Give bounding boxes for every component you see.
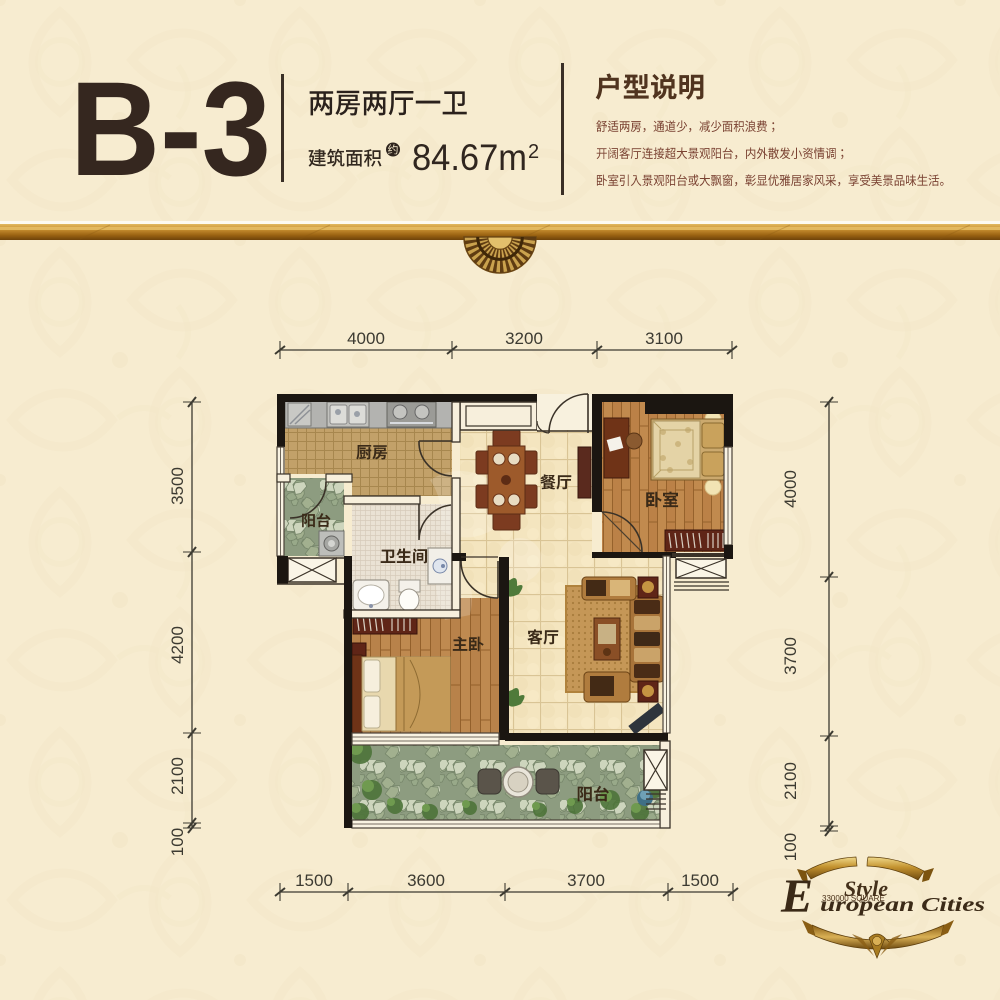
svg-text:84.67m: 84.67m [412,137,527,178]
svg-text:100: 100 [168,828,187,856]
svg-text:4200: 4200 [168,626,187,664]
svg-text:100: 100 [781,833,800,861]
svg-text:2100: 2100 [168,757,187,795]
svg-text:2100: 2100 [781,762,800,800]
svg-text:3600: 3600 [407,871,445,890]
svg-text:3100: 3100 [645,329,683,348]
svg-text:1500: 1500 [295,871,333,890]
svg-text:3700: 3700 [567,871,605,890]
svg-text:330000 SQUARE: 330000 SQUARE [822,894,885,903]
svg-text:3200: 3200 [505,329,543,348]
svg-text:4000: 4000 [781,470,800,508]
svg-text:E: E [780,870,813,923]
svg-text:1500: 1500 [681,871,719,890]
svg-text:3700: 3700 [781,637,800,675]
svg-text:2: 2 [528,141,539,163]
svg-text:4000: 4000 [347,329,385,348]
svg-text:B-3: B-3 [70,55,271,204]
svg-text:3500: 3500 [168,467,187,505]
